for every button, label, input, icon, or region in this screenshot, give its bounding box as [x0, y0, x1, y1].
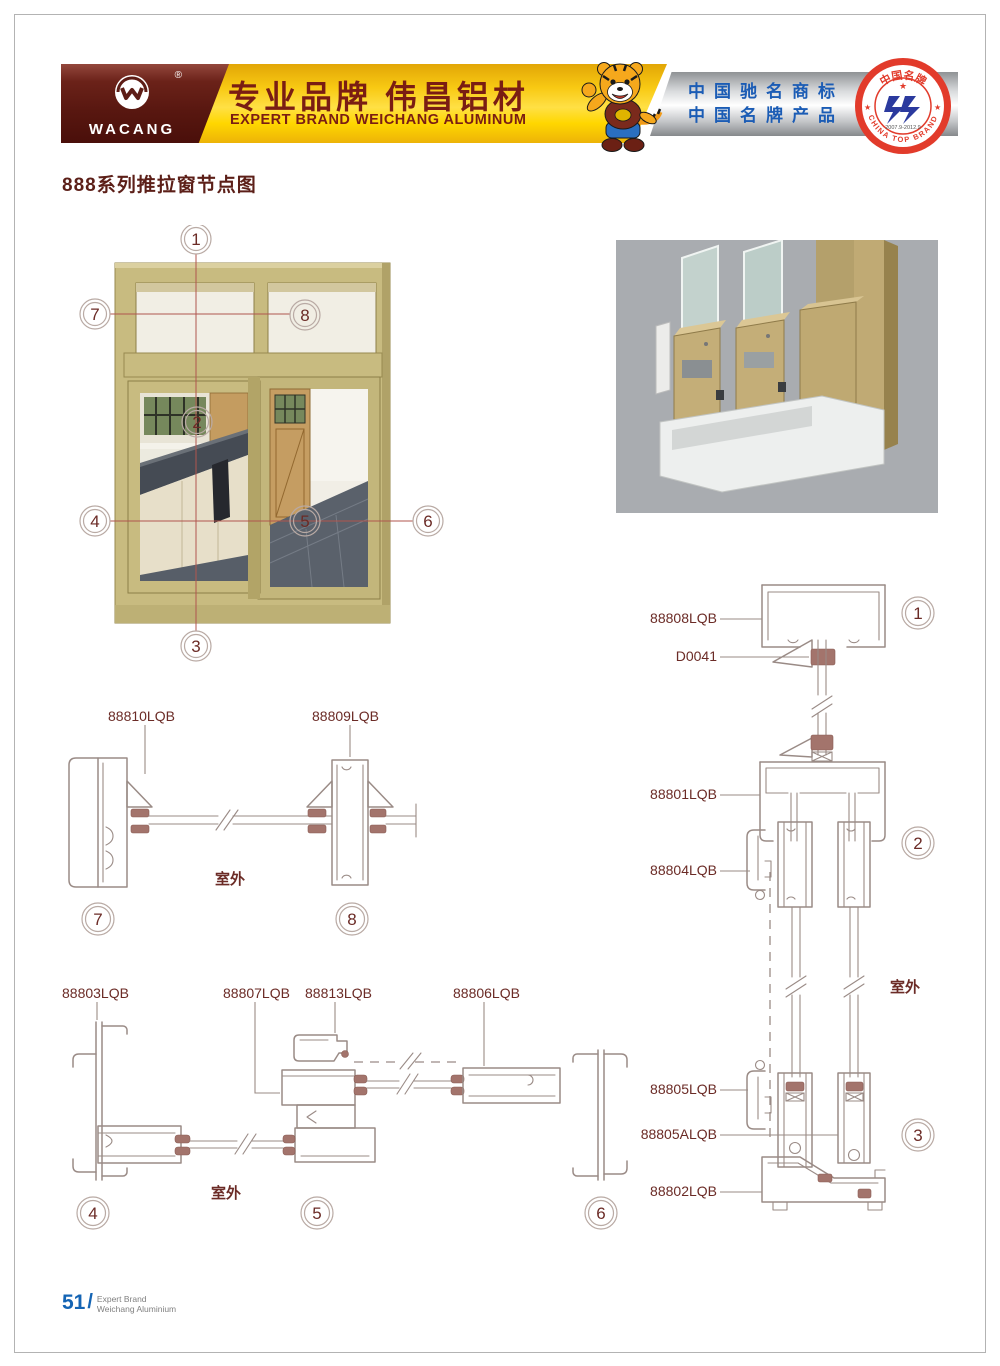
svg-text:1: 1: [191, 230, 200, 249]
callout-section-5: 5: [301, 1197, 333, 1229]
label-88804lqb: 88804LQB: [650, 862, 717, 878]
window-photo: [115, 263, 390, 623]
tiger-mascot-icon: [566, 56, 672, 157]
callout-section-2: 2: [902, 827, 934, 859]
svg-text:5: 5: [300, 512, 309, 531]
svg-text:1: 1: [913, 604, 922, 623]
label-d0041: D0041: [676, 648, 717, 664]
label-88807lqb: 88807LQB: [223, 985, 290, 1001]
callout-section-7: 7: [82, 903, 114, 935]
svg-text:3: 3: [191, 637, 200, 656]
footer-line-2: Weichang Aluminium: [97, 1304, 176, 1314]
callout-7: 7: [80, 299, 110, 329]
callout-4: 4: [80, 506, 110, 536]
profile-7-geometry: [69, 758, 152, 887]
profile-4-geometry: [73, 1022, 190, 1180]
label-88802lqb: 88802LQB: [650, 1183, 717, 1199]
label-88808lqb: 88808LQB: [650, 610, 717, 626]
window-photo-figure: 1 7 8 2 4 5 6: [62, 225, 462, 670]
page-footer: 51 / Expert Brand Weichang Aluminium: [62, 1292, 176, 1314]
sill-geometry: [762, 1157, 885, 1210]
footer-slash: /: [87, 1292, 93, 1313]
page-number: 51: [62, 1292, 85, 1313]
badge-star-icon: ★: [899, 81, 907, 91]
svg-text:7: 7: [93, 910, 102, 929]
glass-456-lower: [190, 1134, 283, 1154]
outdoor-label-123: 室外: [890, 978, 920, 996]
callout-section-8: 8: [336, 903, 368, 935]
glass-456-upper: [367, 1074, 451, 1094]
render-profiles: [656, 240, 898, 492]
label-88813lqb: 88813LQB: [305, 985, 372, 1001]
label-88809lqb: 88809LQB: [312, 708, 379, 724]
badge-star-right-icon: ★: [934, 103, 941, 112]
honors-text: 中国驰名商标 中国名牌产品: [688, 80, 844, 128]
callout-section-1: 1: [902, 597, 934, 629]
callout-1: 1: [181, 225, 211, 254]
label-88805lqb: 88805LQB: [650, 1081, 717, 1097]
footer-line-1: Expert Brand: [97, 1294, 176, 1304]
honors-line-2: 中国名牌产品: [688, 104, 844, 128]
china-top-brand-badge: 中国名牌 CHINA TOP BRAND ★ ★ ★ 2007.9-2012.9: [853, 56, 953, 161]
svg-text:7: 7: [90, 305, 99, 324]
sash-bottom-geometry: [778, 1073, 870, 1167]
sash-glass-verticals: [786, 907, 864, 1077]
profile-6-geometry: [451, 1050, 627, 1180]
callout-section-6: 6: [585, 1197, 617, 1229]
leader-88807: [255, 1002, 280, 1093]
logo-wordmark: WACANG: [72, 121, 192, 138]
section-drawing-123: 88808LQB D0041 88801LQB 88804LQB 88805LQ…: [628, 577, 963, 1247]
section-drawing-456: 88803LQB 88807LQB 88813LQB 88806LQB 室外 4…: [58, 983, 648, 1243]
label-88805alqb: 88805ALQB: [641, 1126, 717, 1142]
svg-text:4: 4: [88, 1204, 97, 1223]
badge-dates: 2007.9-2012.9: [885, 125, 920, 131]
svg-text:8: 8: [300, 306, 309, 325]
svg-text:5: 5: [312, 1204, 321, 1223]
head-frame-geometry: [762, 585, 885, 667]
honors-line-1: 中国驰名商标: [688, 80, 844, 104]
label-88801lqb: 88801LQB: [650, 786, 717, 802]
page-title: 888系列推拉窗节点图: [62, 170, 257, 197]
registered-mark: ®: [175, 70, 182, 81]
svg-text:4: 4: [90, 512, 99, 531]
callout-section-3: 3: [902, 1119, 934, 1151]
label-88810lqb: 88810LQB: [108, 708, 175, 724]
interior-room-scene: [270, 389, 368, 587]
callout-6: 6: [413, 506, 443, 536]
svg-text:6: 6: [596, 1204, 605, 1223]
callout-section-4: 4: [77, 1197, 109, 1229]
latch-lower-geometry: [747, 1061, 771, 1130]
profile-5-geometry: [282, 1035, 462, 1162]
brand-logo: ® WACANG: [72, 68, 192, 140]
svg-text:2: 2: [913, 834, 922, 853]
catalog-page: ® WACANG 专业品牌 伟昌铝材 EXPERT BRAND WEICHANG…: [0, 0, 1000, 1366]
footer-brand-text: Expert Brand Weichang Aluminium: [97, 1292, 176, 1314]
label-88803lqb: 88803LQB: [62, 985, 129, 1001]
callout-3: 3: [181, 631, 211, 661]
profile-render-figure: [616, 240, 938, 518]
svg-text:3: 3: [913, 1126, 922, 1145]
outdoor-label-456: 室外: [211, 1184, 241, 1202]
section-drawing-78: 88810LQB 88809LQB 室外 7 8: [60, 697, 455, 947]
svg-text:8: 8: [347, 910, 356, 929]
badge-star-left-icon: ★: [864, 103, 871, 112]
sash-top-geometry: [778, 822, 870, 907]
svg-text:2: 2: [192, 413, 201, 432]
outdoor-label-78: 室外: [215, 870, 245, 888]
label-88806lqb: 88806LQB: [453, 985, 520, 1001]
profile-8-geometry: [307, 760, 393, 885]
svg-text:6: 6: [423, 512, 432, 531]
